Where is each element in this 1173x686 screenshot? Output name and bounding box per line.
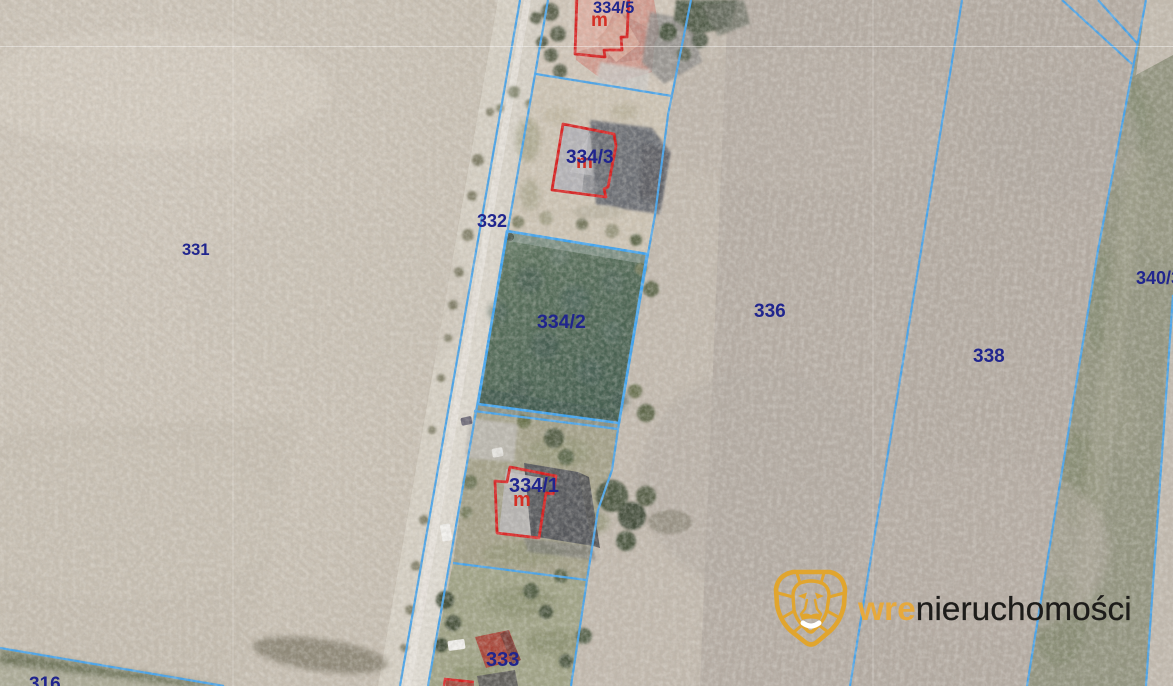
svg-text:334/2: 334/2 [537,311,586,333]
svg-text:332: 332 [477,211,507,231]
svg-text:331: 331 [182,241,210,259]
svg-text:336: 336 [754,301,786,322]
svg-text:334/1: 334/1 [509,475,559,497]
svg-text:333: 333 [486,649,519,671]
svg-text:316: 316 [29,674,61,686]
svg-text:334/5: 334/5 [593,0,634,17]
svg-text:wrenieruchomości: wrenieruchomości [857,591,1132,628]
svg-text:334/3: 334/3 [566,147,614,168]
svg-text:340/3: 340/3 [1136,268,1173,288]
svg-text:338: 338 [973,346,1005,367]
